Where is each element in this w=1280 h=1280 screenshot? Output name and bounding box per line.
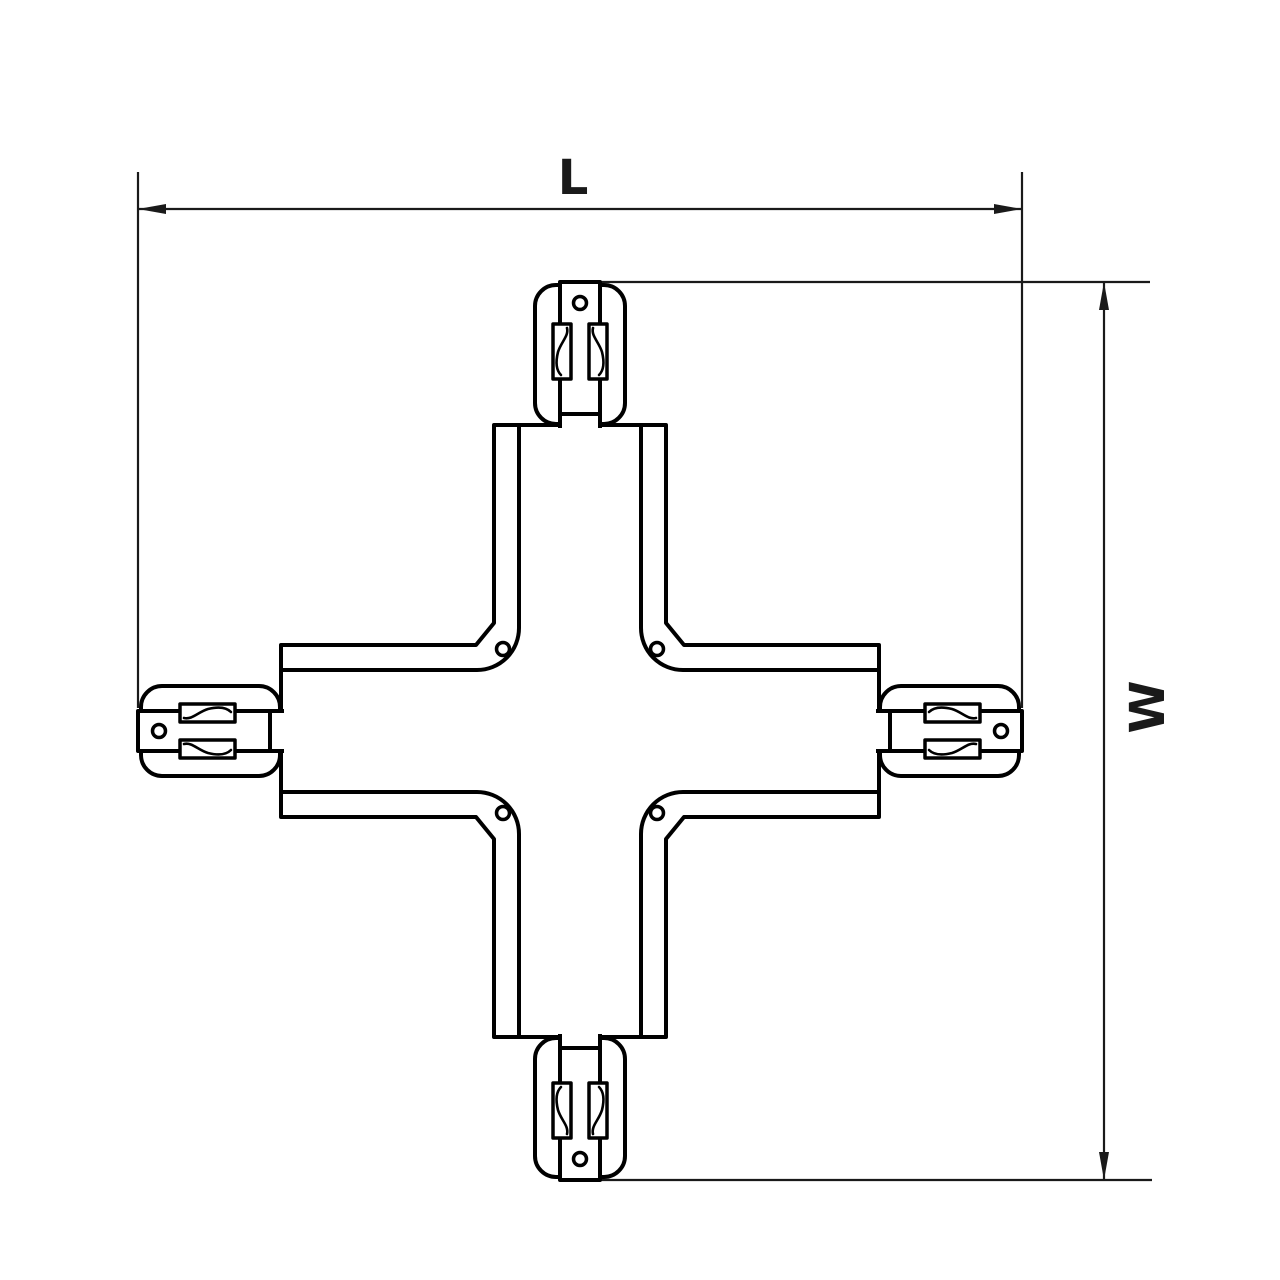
screw-hole-bottom-right <box>651 807 664 820</box>
connector-right <box>876 686 1022 776</box>
screw-hole-top-right <box>651 643 664 656</box>
cross-connector-body <box>281 425 879 1037</box>
arrowhead-down-icon <box>1099 1152 1109 1180</box>
technical-drawing: L W <box>0 0 1280 1280</box>
arrowhead-right-icon <box>994 204 1022 214</box>
connector-top <box>535 282 625 428</box>
screw-hole-bottom-left <box>497 807 510 820</box>
arrowhead-up-icon <box>1099 282 1109 310</box>
connector-left <box>138 686 284 776</box>
connector-bottom <box>535 1034 625 1180</box>
arrowhead-left-icon <box>138 204 166 214</box>
width-label: W <box>1120 681 1176 734</box>
screw-hole-top-left <box>497 643 510 656</box>
body-outer-contour <box>281 425 879 1037</box>
length-label: L <box>558 150 589 206</box>
